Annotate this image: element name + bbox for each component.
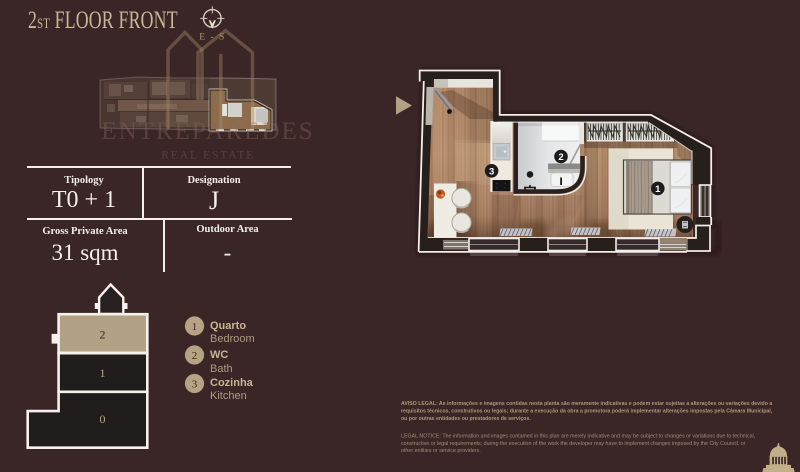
svg-text:2: 2 [558,152,563,163]
svg-text:3: 3 [192,379,198,391]
svg-text:REAL ESTATE: REAL ESTATE [161,148,255,162]
svg-text:0: 0 [100,412,106,426]
svg-text:3: 3 [489,166,494,177]
svg-text:1: 1 [655,184,661,195]
svg-text:2: 2 [192,350,198,362]
svg-text:2: 2 [100,328,106,342]
svg-text:1: 1 [100,366,106,380]
svg-text:1: 1 [192,321,198,333]
svg-text:ENTREPAREDES: ENTREPAREDES [101,118,314,145]
